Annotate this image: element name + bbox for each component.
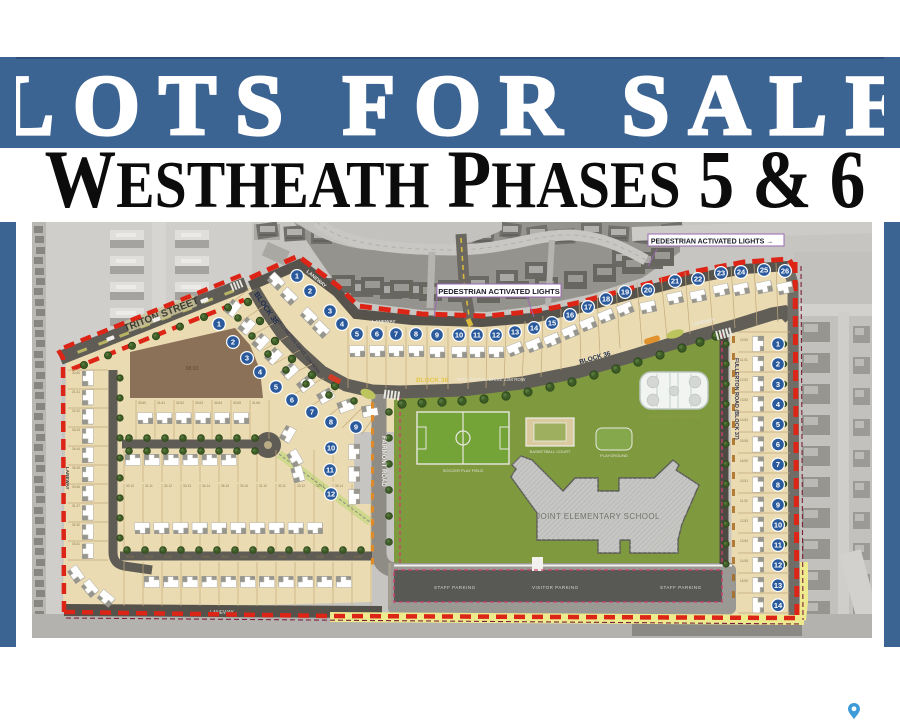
svg-text:35.45: 35.45 [72,466,80,470]
svg-text:13: 13 [774,581,782,590]
svg-text:23.50: 23.50 [316,555,324,559]
svg-text:32.40: 32.40 [72,523,80,527]
svg-text:31.10: 31.10 [259,484,267,488]
svg-text:1: 1 [776,340,780,349]
svg-text:11: 11 [326,466,334,475]
svg-text:LANEWAY: LANEWAY [65,467,70,490]
svg-text:33.43: 33.43 [72,428,80,432]
svg-text:31.41: 31.41 [72,390,80,394]
svg-text:2: 2 [776,360,780,369]
svg-text:2: 2 [231,338,235,347]
svg-text:8: 8 [776,480,780,489]
svg-text:8: 8 [414,330,418,339]
svg-text:33.41: 33.41 [72,542,80,546]
svg-text:STAFF PARKING: STAFF PARKING [660,585,702,590]
svg-text:22: 22 [694,275,702,284]
svg-text:14.55: 14.55 [740,559,748,563]
svg-text:12.53: 12.53 [740,519,748,523]
svg-text:3: 3 [776,380,780,389]
svg-text:30.60: 30.60 [138,401,146,405]
svg-text:10: 10 [455,331,463,340]
svg-text:32.12: 32.12 [164,484,172,488]
svg-text:21.53: 21.53 [278,555,286,559]
svg-text:30.40: 30.40 [72,371,80,375]
svg-text:34.64: 34.64 [214,401,222,405]
svg-text:31.66: 31.66 [252,401,260,405]
svg-text:9: 9 [435,331,439,340]
svg-text:30.65: 30.65 [233,401,241,405]
svg-text:24: 24 [737,268,746,277]
svg-text:11: 11 [473,331,481,340]
svg-text:32.42: 32.42 [72,409,80,413]
svg-text:PEDESTRIAN ACTIVATED LIGHTS: PEDESTRIAN ACTIVATED LIGHTS [438,287,560,296]
svg-text:1: 1 [295,272,299,281]
svg-text:12: 12 [327,490,335,499]
svg-text:15.50: 15.50 [740,579,748,583]
svg-text:6: 6 [290,396,294,405]
svg-text:JOINT ELEMENTARY SCHOOL: JOINT ELEMENTARY SCHOOL [536,512,660,521]
svg-text:13: 13 [511,328,519,337]
svg-text:35.14: 35.14 [335,484,343,488]
svg-text:23: 23 [717,269,725,278]
svg-text:BASKETBALL COURT: BASKETBALL COURT [530,449,571,454]
svg-text:7: 7 [310,408,314,417]
svg-text:7: 7 [776,460,780,469]
svg-text:30.10: 30.10 [126,484,134,488]
svg-text:10.51: 10.51 [740,479,748,483]
svg-text:15.55: 15.55 [740,439,748,443]
svg-text:13.53: 13.53 [740,398,748,402]
svg-text:WELLINGTON DRIVE 22M ROW: WELLINGTON DRIVE 22M ROW [457,377,526,382]
svg-text:30.46: 30.46 [72,485,80,489]
svg-text:PEDESTRIAN ACTIVATED LIGHTS →: PEDESTRIAN ACTIVATED LIGHTS → [651,239,773,246]
svg-text:3: 3 [245,354,249,363]
svg-text:34.14: 34.14 [202,484,210,488]
svg-text:19: 19 [621,288,629,297]
svg-text:35.15: 35.15 [221,484,229,488]
svg-text:8: 8 [329,418,333,427]
svg-text:33.12: 33.12 [297,484,305,488]
svg-text:32.62: 32.62 [176,401,184,405]
svg-text:26.51: 26.51 [240,555,248,559]
svg-text:15: 15 [548,319,556,328]
svg-text:21.51: 21.51 [145,555,153,559]
svg-text:5: 5 [776,420,780,429]
svg-text:98.03: 98.03 [186,366,199,372]
svg-text:26: 26 [781,267,789,276]
svg-text:2: 2 [308,287,312,296]
svg-text:10.50: 10.50 [740,338,748,342]
svg-text:30.16: 30.16 [240,484,248,488]
svg-text:9: 9 [776,500,780,509]
svg-text:VISITOR PARKING: VISITOR PARKING [532,585,579,590]
svg-text:22.54: 22.54 [297,555,305,559]
svg-text:12: 12 [774,561,782,570]
svg-text:FULLERTON ROAD (BLOCK 37): FULLERTON ROAD (BLOCK 37) [733,358,739,440]
svg-text:24.54: 24.54 [202,555,210,559]
svg-text:FAIRMONT ROAD: FAIRMONT ROAD [380,436,386,487]
svg-text:20: 20 [644,286,652,295]
svg-text:34.44: 34.44 [72,447,80,451]
svg-text:14.54: 14.54 [740,418,748,422]
svg-text:1: 1 [217,320,221,329]
svg-text:23.53: 23.53 [183,555,191,559]
svg-text:10: 10 [774,521,782,530]
svg-text:25.52: 25.52 [354,555,362,559]
svg-text:11.52: 11.52 [740,499,748,503]
svg-text:24.51: 24.51 [335,555,343,559]
svg-text:(MELBOURNE HOCKEY RINK): (MELBOURNE HOCKEY RINK) [649,415,700,419]
svg-text:20.52: 20.52 [259,555,267,559]
svg-text:31.47: 31.47 [72,504,80,508]
svg-text:PLAYGROUND: PLAYGROUND [600,453,628,458]
svg-text:STAFF PARKING: STAFF PARKING [434,585,476,590]
svg-text:21: 21 [671,277,679,286]
svg-text:17: 17 [584,303,592,312]
svg-text:12.52: 12.52 [740,378,748,382]
svg-text:SOCCER PLAY FIELD: SOCCER PLAY FIELD [443,468,484,473]
svg-text:3: 3 [328,307,332,316]
svg-text:22.52: 22.52 [164,555,172,559]
svg-text:12: 12 [492,331,500,340]
svg-text:5: 5 [355,330,359,339]
svg-text:11: 11 [774,541,782,550]
svg-text:18: 18 [602,295,610,304]
svg-text:33.63: 33.63 [195,401,203,405]
svg-text:7: 7 [394,330,398,339]
svg-text:14: 14 [530,324,539,333]
svg-text:10: 10 [327,444,335,453]
svg-text:13.54: 13.54 [740,539,748,543]
svg-text:14: 14 [774,601,783,610]
svg-text:31.61: 31.61 [157,401,165,405]
svg-text:BLOCK 36: BLOCK 36 [416,377,449,384]
svg-text:5: 5 [274,383,278,392]
svg-text:9: 9 [354,423,358,432]
svg-text:31.11: 31.11 [145,484,153,488]
svg-text:34.13: 34.13 [316,484,324,488]
svg-text:25.50: 25.50 [221,555,229,559]
svg-text:11.51: 11.51 [740,358,748,362]
svg-text:6: 6 [776,440,780,449]
svg-text:32.11: 32.11 [278,484,286,488]
svg-text:16: 16 [566,311,574,320]
svg-text:33.13: 33.13 [183,484,191,488]
svg-text:25: 25 [760,266,768,275]
svg-text:16.50: 16.50 [740,459,748,463]
svg-text:LANEWAY: LANEWAY [372,319,396,325]
svg-text:6: 6 [375,330,379,339]
svg-text:20.50: 20.50 [126,555,134,559]
